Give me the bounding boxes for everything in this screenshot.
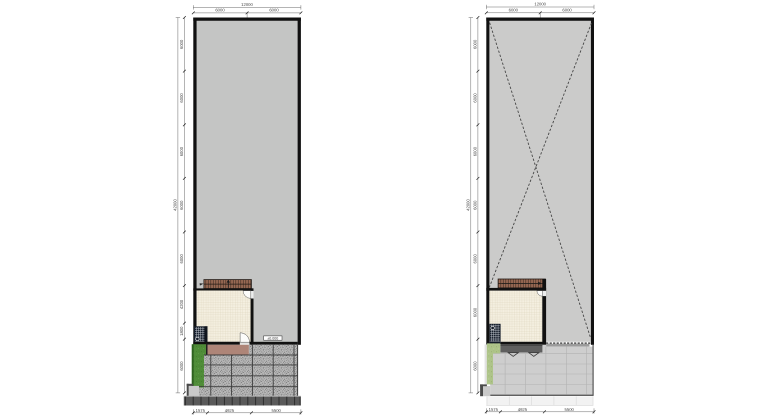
- svg-text:6000: 6000: [472, 146, 477, 156]
- svg-text:6000: 6000: [472, 361, 477, 371]
- svg-text:±0.000: ±0.000: [267, 336, 278, 340]
- svg-text:12000: 12000: [534, 2, 546, 7]
- svg-text:6000: 6000: [509, 8, 519, 13]
- svg-text:6000: 6000: [179, 39, 184, 49]
- svg-text:6000: 6000: [472, 307, 477, 317]
- svg-text:4925: 4925: [518, 407, 528, 412]
- svg-text:6000: 6000: [562, 8, 572, 13]
- svg-text:6000: 6000: [472, 39, 477, 49]
- svg-text:4925: 4925: [225, 408, 235, 413]
- svg-text:1575: 1575: [489, 407, 499, 412]
- svg-text:42000: 42000: [466, 199, 471, 211]
- svg-text:12000: 12000: [241, 2, 253, 7]
- svg-text:4200: 4200: [179, 299, 184, 309]
- svg-text:6000: 6000: [179, 361, 184, 371]
- svg-text:5500: 5500: [565, 407, 575, 412]
- svg-text:6000: 6000: [269, 8, 279, 13]
- svg-text:6000: 6000: [179, 200, 184, 210]
- svg-text:42000: 42000: [173, 199, 178, 211]
- svg-text:1575: 1575: [196, 408, 206, 413]
- svg-text:6000: 6000: [179, 253, 184, 263]
- svg-text:6000: 6000: [179, 146, 184, 156]
- svg-text:6000: 6000: [179, 93, 184, 103]
- svg-text:6000: 6000: [472, 93, 477, 103]
- svg-text:5500: 5500: [272, 408, 282, 413]
- svg-text:6000: 6000: [472, 253, 477, 263]
- svg-text:6000: 6000: [472, 200, 477, 210]
- svg-text:1800: 1800: [179, 326, 184, 336]
- svg-text:6000: 6000: [215, 8, 225, 13]
